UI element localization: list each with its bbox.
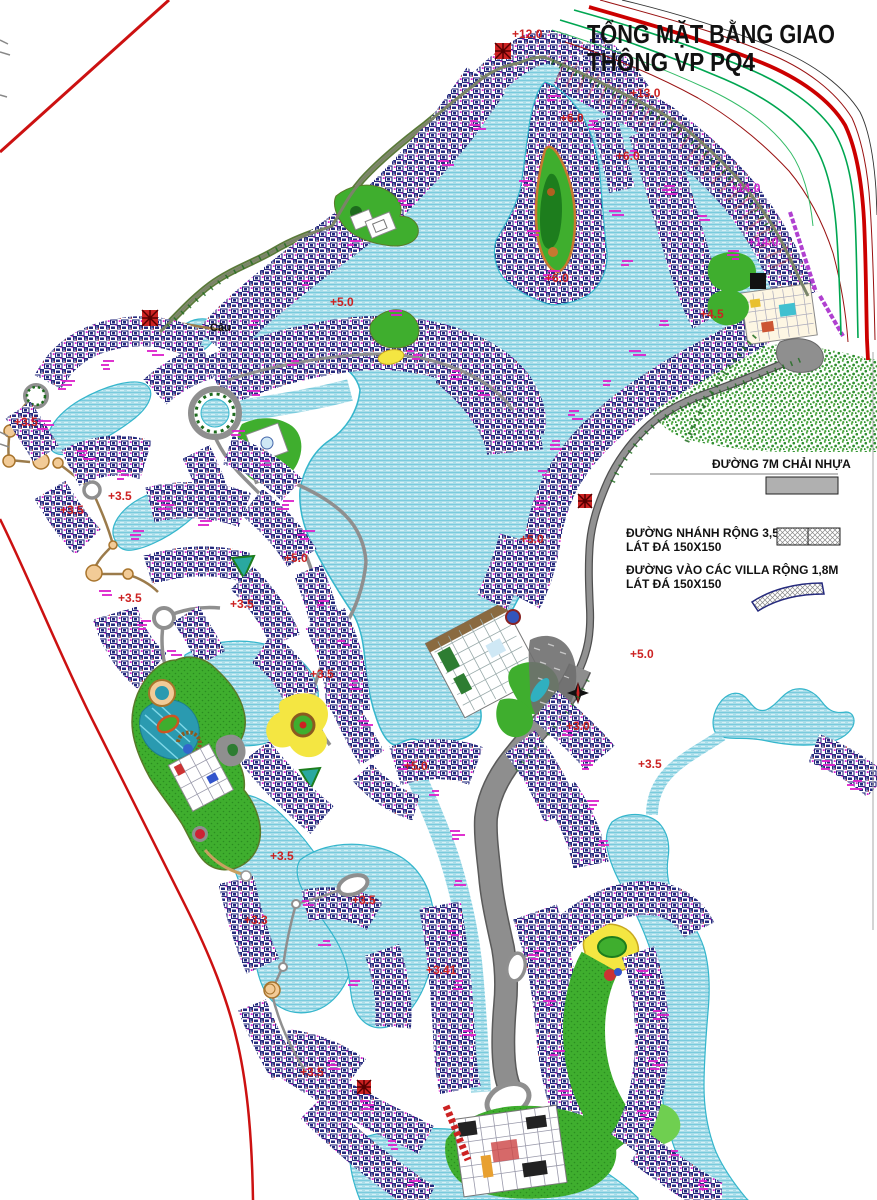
svg-text:+3.3: +3.3 (244, 913, 268, 927)
svg-text:+3.5: +3.5 (270, 849, 294, 863)
svg-text:+6.0: +6.0 (545, 271, 569, 285)
svg-text:+14.0: +14.0 (730, 181, 761, 195)
svg-text:LÁT ĐÁ 150X150: LÁT ĐÁ 150X150 (626, 539, 722, 554)
svg-text:+5.0: +5.0 (404, 759, 428, 773)
svg-text:+3.5: +3.5 (60, 503, 84, 517)
svg-text:+5.0: +5.0 (330, 295, 354, 309)
svg-text:+4.5: +4.5 (700, 307, 724, 321)
svg-text:LÁT ĐÁ 150X150: LÁT ĐÁ 150X150 (626, 576, 722, 591)
svg-text:ĐƯỜNG VÀO CÁC VILLA RỘNG 1,8M: ĐƯỜNG VÀO CÁC VILLA RỘNG 1,8M (626, 562, 838, 577)
svg-text:TỔNG MẶT BẰNG GIAO: TỔNG MẶT BẰNG GIAO (587, 19, 835, 49)
svg-text:ĐƯỜNG 7M CHẢI NHỰA: ĐƯỜNG 7M CHẢI NHỰA (712, 456, 851, 471)
svg-text:+13.0: +13.0 (630, 86, 661, 100)
svg-text:+12.0: +12.0 (512, 27, 543, 41)
svg-text:+5.0: +5.0 (284, 551, 308, 565)
svg-text:+3.5: +3.5 (352, 893, 376, 907)
svg-text:+6.0: +6.0 (560, 111, 584, 125)
svg-text:+3.5: +3.5 (108, 489, 132, 503)
svg-text:ĐƯỜNG NHÁNH RỘNG 3,5M: ĐƯỜNG NHÁNH RỘNG 3,5M (626, 525, 789, 540)
svg-text:+14.0: +14.0 (748, 235, 779, 249)
svg-text:+3.5: +3.5 (118, 591, 142, 605)
svg-text:+3.41: +3.41 (426, 963, 457, 977)
svg-text:+3.5: +3.5 (14, 415, 38, 429)
svg-text:THÔNG VP PQ4: THÔNG VP PQ4 (587, 47, 755, 77)
svg-text:+5.0: +5.0 (520, 532, 544, 546)
svg-text:+5.0: +5.0 (630, 647, 654, 661)
svg-text:+3.5: +3.5 (300, 1065, 324, 1079)
svg-text:+3.5: +3.5 (638, 757, 662, 771)
svg-text:Cầu: Cầu (210, 322, 231, 334)
svg-text:+3.5: +3.5 (310, 667, 334, 681)
svg-text:+3.5: +3.5 (230, 597, 254, 611)
svg-text:+3.0: +3.0 (566, 719, 590, 733)
svg-text:+6.0: +6.0 (616, 149, 640, 163)
